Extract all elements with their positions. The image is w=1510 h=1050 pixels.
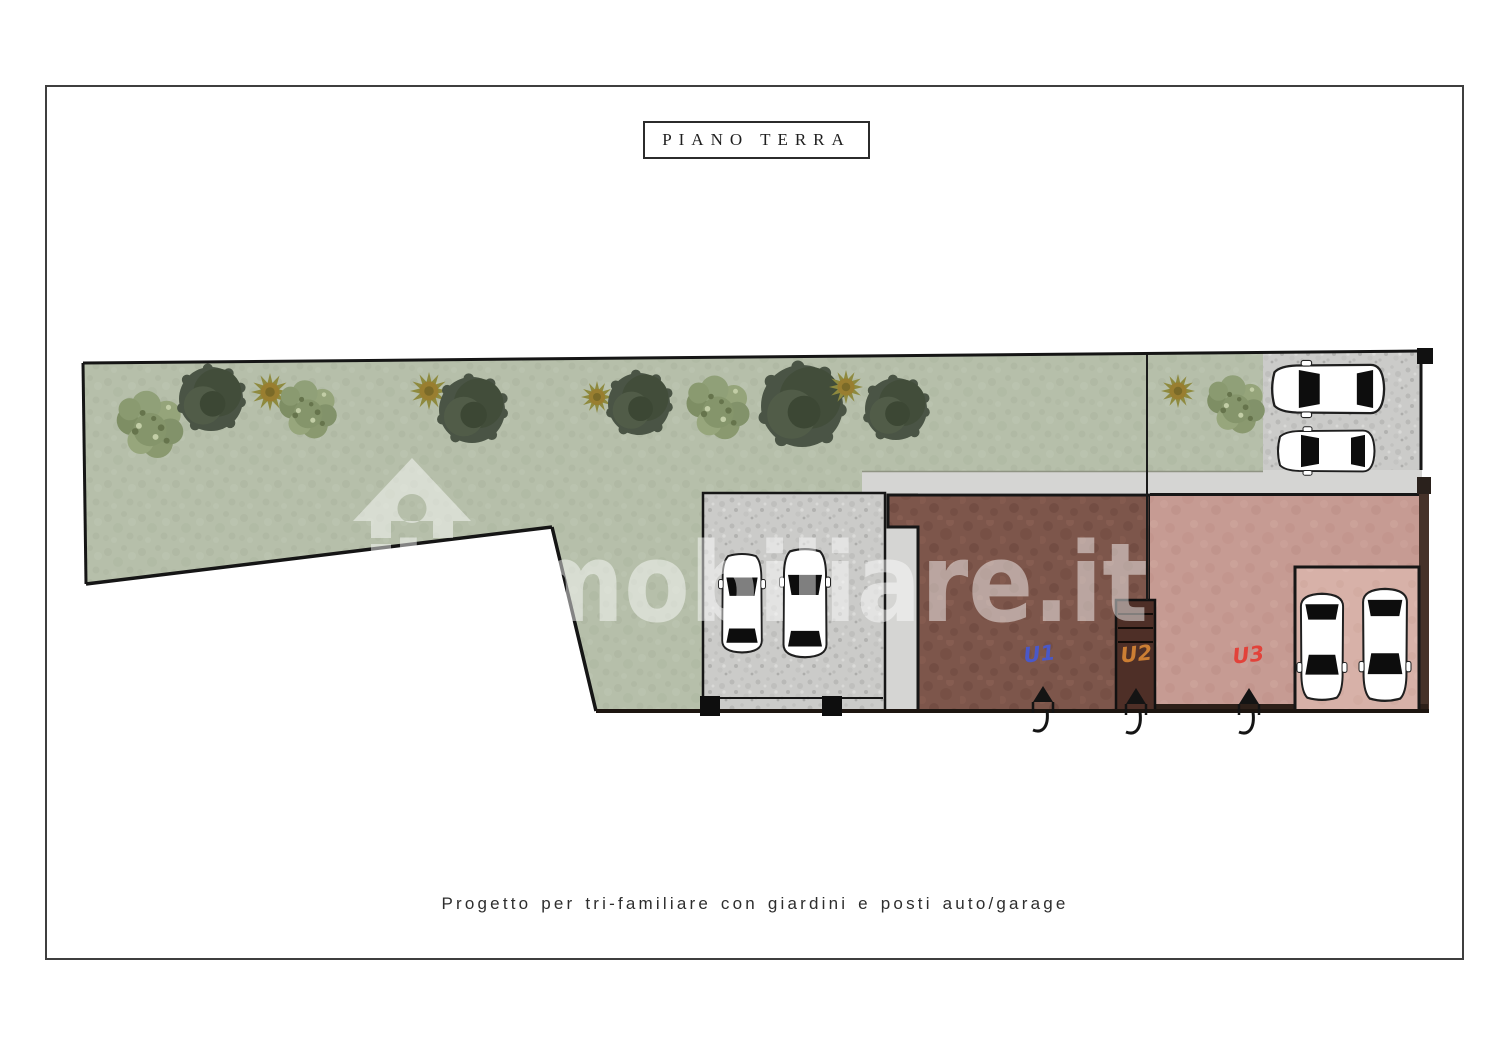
walkway-strip — [862, 470, 1422, 493]
pillar-right — [822, 696, 842, 716]
car-top-view-icon — [1272, 360, 1384, 417]
corner-block-top-right — [1417, 348, 1433, 364]
pillar-left — [700, 696, 720, 716]
site-plan-drawing: U1 U2 U3 immobiliare.it — [0, 0, 1510, 1050]
car-top-view-icon — [1278, 427, 1375, 475]
car-top-view-icon — [1297, 594, 1347, 700]
caption: Progetto per tri-familiare con giardini … — [0, 894, 1510, 914]
watermark-text: immobiliare.it — [392, 519, 1148, 647]
page: { "page": { "title": "PIANO TERRA", "cap… — [0, 0, 1510, 1050]
car-top-view-icon — [1359, 589, 1411, 701]
unit3-label: U3 — [1231, 641, 1265, 668]
corner-step-right — [1417, 477, 1431, 494]
